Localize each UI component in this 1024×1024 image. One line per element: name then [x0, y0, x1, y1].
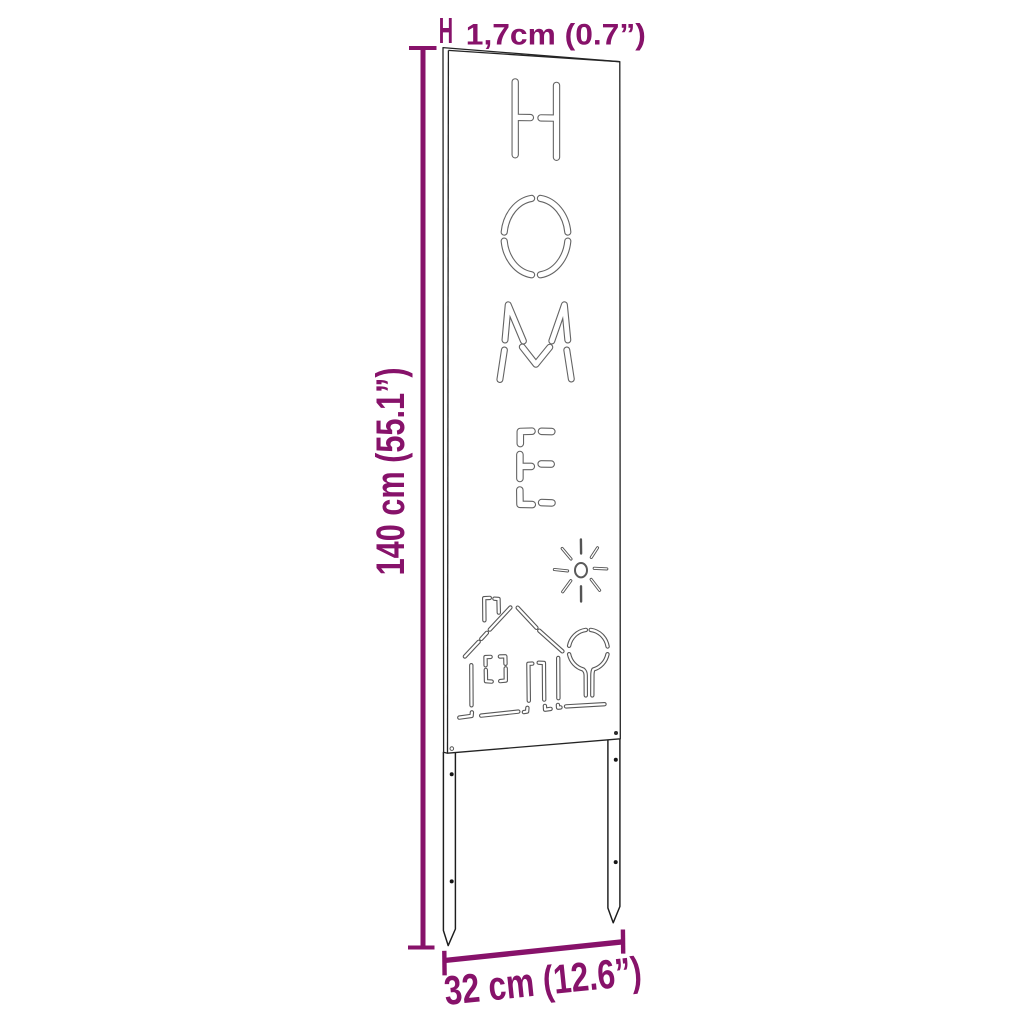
- svg-text:1,7cm (0.7”): 1,7cm (0.7”): [466, 19, 646, 52]
- svg-text:140 cm (55.1”): 140 cm (55.1”): [369, 367, 413, 575]
- svg-text:H: H: [439, 12, 453, 52]
